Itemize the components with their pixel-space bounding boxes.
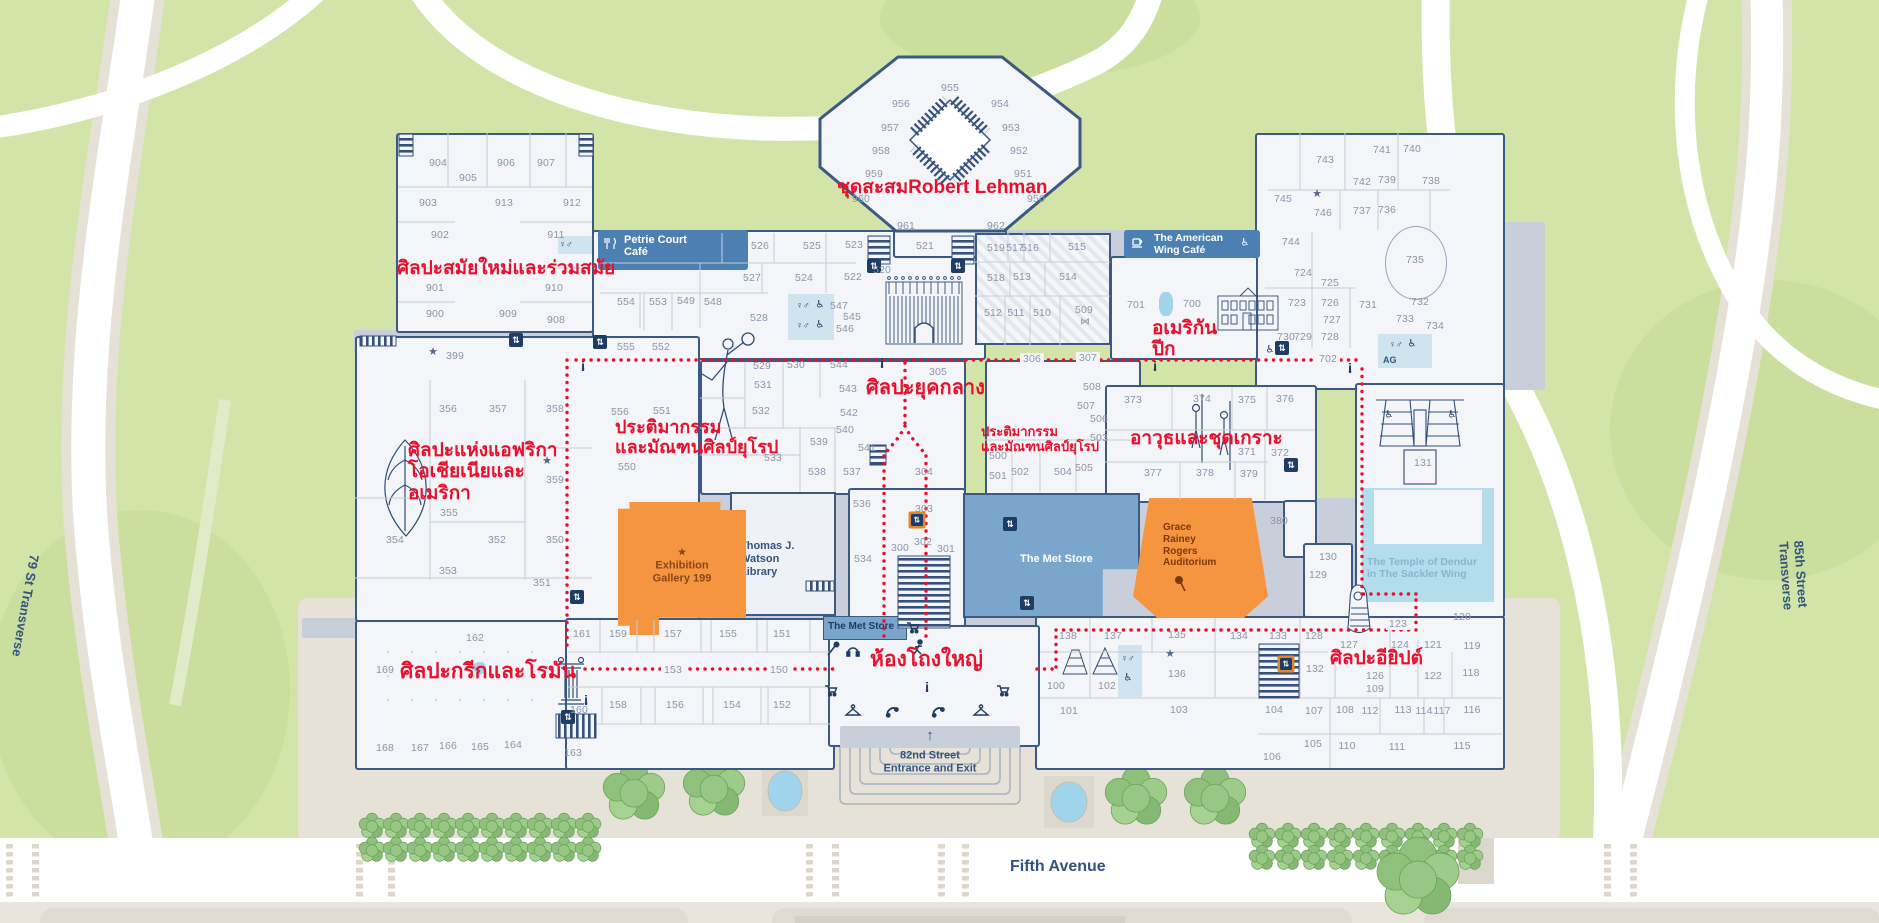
thai-annotation-7: ศิลปะแห่งแอฟริกาโอเชียเนียและอเมริกา — [408, 440, 558, 504]
room-label-524: 524 — [795, 272, 813, 284]
choir-screen-art — [886, 277, 962, 344]
room-label-129: 129 — [1309, 569, 1327, 581]
street-label-fifth-avenue: Fifth Avenue — [1010, 858, 1106, 877]
room-label-133: 133 — [1269, 630, 1287, 642]
room-label-519: 519 — [987, 242, 1005, 254]
coat-check-icon — [974, 705, 988, 715]
room-label-740: 740 — [1403, 143, 1421, 155]
shop-cart-icon — [997, 686, 1009, 696]
room-label-134: 134 — [1230, 630, 1248, 642]
room-label-702: 702 — [1316, 353, 1340, 365]
room-label-553: 553 — [649, 296, 667, 308]
thai-annotation-9: ห้องโถงใหญ่ — [870, 648, 983, 672]
visitor-route-dotted — [567, 360, 1416, 669]
room-label-736: 736 — [1378, 204, 1396, 216]
room-label-159: 159 — [609, 628, 627, 640]
room-label-131: 131 — [1414, 457, 1432, 469]
room-label-724: 724 — [1294, 267, 1312, 279]
room-label-154: 154 — [723, 699, 741, 711]
room-label-541: 541 — [858, 442, 876, 454]
room-label-526: 526 — [751, 240, 769, 252]
room-label-534: 534 — [854, 553, 872, 565]
room-label-540: 540 — [836, 424, 854, 436]
annotation-line: อเมริกา — [408, 483, 558, 504]
svg-text:♀♂: ♀♂ — [796, 300, 810, 310]
room-label-962: 962 — [987, 220, 1005, 232]
room-label-353: 353 — [439, 565, 457, 577]
map-art-layer: ⇅⇅⇅⇅⇅⇅⇅⇅⇅⇅⇅⇅♀♂♀♂♿♀♂♿♀♂♿♀♂♿iiiiii★★★★♿♿⋈♿… — [0, 0, 1879, 923]
room-label-901: 901 — [426, 282, 444, 294]
room-label-355: 355 — [440, 507, 458, 519]
thai-annotation-0: ศิลปะสมัยใหม่และร่วมสมัย — [397, 258, 615, 279]
thai-annotation-4: ศิลปะยุคกลาง — [866, 377, 985, 400]
entrance-label-line1: 82nd Street — [900, 750, 960, 763]
room-label-527: 527 — [743, 272, 761, 284]
room-label-727: 727 — [1323, 314, 1341, 326]
room-label-511: 511 — [1007, 307, 1024, 319]
annotation-line: ประติมากรรม — [615, 417, 778, 437]
svg-text:⇅: ⇅ — [914, 516, 921, 525]
room-label-306: 306 — [1020, 353, 1044, 365]
svg-text:♿: ♿ — [1408, 339, 1417, 350]
room-label-731: 731 — [1359, 299, 1377, 311]
room-label-508: 508 — [1083, 381, 1101, 393]
room-label-739: 739 — [1378, 174, 1396, 186]
room-label-162: 162 — [466, 632, 484, 644]
svg-text:♿: ♿ — [1448, 410, 1457, 421]
room-label-549: 549 — [677, 295, 695, 307]
room-label-150: 150 — [767, 664, 791, 676]
room-label-161: 161 — [573, 628, 591, 640]
room-label-905: 905 — [459, 172, 477, 184]
thai-annotation-10: ศิลปะอียิปต์ — [1330, 648, 1423, 669]
thai-annotation-8: ศิลปะกรีกและโรมัน — [400, 660, 576, 684]
room-label-542: 542 — [840, 407, 858, 419]
annotation-line: ปีก — [1152, 339, 1217, 360]
room-label-137: 137 — [1104, 630, 1122, 642]
room-label-509: 509 — [1075, 304, 1093, 316]
svg-text:♀♂: ♀♂ — [796, 320, 810, 330]
info-icon: i — [1348, 360, 1352, 376]
tables-icon: ⋈ — [1080, 317, 1090, 328]
room-label-166: 166 — [439, 740, 457, 752]
room-label-158: 158 — [609, 699, 627, 711]
room-label-358: 358 — [546, 403, 564, 415]
svg-text:♿: ♿ — [1124, 673, 1133, 684]
svg-text:⇅: ⇅ — [1287, 460, 1295, 470]
room-label-550: 550 — [618, 461, 636, 473]
svg-text:⇅: ⇅ — [596, 337, 604, 347]
room-label-135: 135 — [1168, 629, 1186, 641]
room-label-743: 743 — [1316, 154, 1334, 166]
svg-text:i: i — [925, 679, 929, 695]
info-icon: i — [880, 355, 884, 371]
wheelchair-icon: ♿ — [816, 300, 825, 311]
room-label-501: 501 — [989, 470, 1007, 482]
room-label-300: 300 — [891, 542, 909, 554]
room-label-165: 165 — [471, 741, 489, 753]
room-label-903: 903 — [419, 197, 437, 209]
room-label-152: 152 — [773, 699, 791, 711]
annotation-line: ห้องโถงใหญ่ — [870, 648, 983, 672]
room-label-132: 132 — [1306, 663, 1324, 675]
room-label-108: 108 — [1336, 704, 1354, 716]
svg-text:i: i — [1348, 360, 1352, 376]
room-label-502: 502 — [1011, 466, 1029, 478]
room-label-106: 106 — [1263, 751, 1281, 763]
staircase[interactable] — [898, 556, 950, 628]
svg-text:★: ★ — [1312, 188, 1322, 200]
elevator-icon[interactable]: ⇅ — [1275, 341, 1289, 355]
room-label-957: 957 — [881, 122, 899, 134]
cafe-cup-icon — [1132, 239, 1142, 247]
room-label-904: 904 — [429, 157, 447, 169]
room-label-119: 119 — [1463, 640, 1480, 652]
room-label-521: 521 — [916, 240, 934, 252]
room-label-113: 113 — [1394, 704, 1411, 716]
room-label-741: 741 — [1373, 144, 1391, 156]
room-label-151: 151 — [773, 628, 791, 640]
room-label-911: 911 — [547, 229, 564, 241]
staircase[interactable] — [360, 336, 396, 346]
svg-text:★: ★ — [428, 346, 438, 358]
elevator-icon[interactable]: ⇅ — [1284, 458, 1298, 472]
room-label-138: 138 — [1059, 630, 1077, 642]
room-label-136: 136 — [1168, 668, 1186, 680]
room-label-738: 738 — [1422, 175, 1440, 187]
room-label-378: 378 — [1196, 467, 1214, 479]
thai-annotation-5: ประติมากรรมและมัณฑนศิลป์ยุโรป — [981, 425, 1099, 454]
room-label-156: 156 — [666, 699, 684, 711]
sarcophagus-art — [1348, 585, 1370, 633]
room-label-122: 122 — [1424, 670, 1442, 682]
annotation-line: อเมริกัน — [1152, 318, 1217, 339]
room-label-522: 522 — [844, 271, 862, 283]
room-label-728: 728 — [1321, 331, 1339, 343]
elevator-icon[interactable]: ⇅ — [951, 259, 965, 273]
annotation-line: และมัณฑนศิลป์ยุโรป — [615, 437, 778, 457]
room-label-107: 107 — [1305, 705, 1323, 717]
room-label-169: 169 — [376, 664, 394, 676]
annotation-line: ศิลปะกรีกและโรมัน — [400, 660, 576, 684]
elevator-icon[interactable]: ⇅ — [570, 590, 584, 604]
room-label-377: 377 — [1144, 467, 1162, 479]
room-label-505: 505 — [1075, 462, 1093, 474]
svg-text:♿: ♿ — [816, 320, 825, 331]
room-label-101: 101 — [1060, 705, 1078, 717]
svg-text:⇅: ⇅ — [512, 335, 520, 345]
room-label-745: 745 — [1274, 193, 1292, 205]
svg-text:⇅: ⇅ — [573, 592, 581, 602]
room-label-167: 167 — [411, 742, 429, 754]
room-label-548: 548 — [704, 296, 722, 308]
room-label-374: 374 — [1193, 393, 1211, 405]
room-label-726: 726 — [1321, 297, 1339, 309]
wheelchair-icon: ♿ — [1124, 673, 1133, 684]
room-label-734: 734 — [1426, 320, 1444, 332]
room-label-544: 544 — [830, 359, 848, 371]
headphones-icon — [847, 648, 859, 656]
restaurant-icon — [605, 238, 616, 249]
elevator-icon[interactable]: ⇅ — [1003, 517, 1017, 531]
room-label-543: 543 — [839, 383, 857, 395]
thai-annotation-6: อาวุธและชุดเกราะ — [1130, 428, 1283, 449]
svg-text:⇅: ⇅ — [1023, 598, 1031, 608]
info-icon: i — [581, 358, 585, 374]
room-label-555: 555 — [617, 341, 635, 353]
annotation-line: ประติมากรรม — [981, 425, 1099, 440]
street-label-85-transverse: 85th Street Transverse — [1775, 540, 1811, 615]
room-label-504: 504 — [1054, 466, 1072, 478]
annotation-line: ศิลปะยุคกลาง — [866, 377, 985, 400]
wheelchair-icon: ♿ — [816, 320, 825, 331]
room-label-130: 130 — [1319, 551, 1337, 563]
room-label-737: 737 — [1353, 205, 1371, 217]
room-label-376: 376 — [1276, 393, 1294, 405]
room-label-399: 399 — [446, 350, 464, 362]
telephone-icon — [885, 706, 899, 718]
room-label-357: 357 — [489, 403, 507, 415]
room-label-516: 516 — [1021, 242, 1039, 254]
room-label-112: 112 — [1361, 705, 1378, 717]
room-label-128: 128 — [1305, 630, 1323, 642]
room-label-512: 512 — [984, 307, 1002, 319]
room-label-907: 907 — [537, 157, 555, 169]
room-label-375: 375 — [1238, 394, 1256, 406]
restroom-icon: ♀♂ — [1121, 653, 1135, 663]
room-label-539: 539 — [810, 436, 828, 448]
room-label-725: 725 — [1321, 277, 1339, 289]
room-label-912: 912 — [563, 197, 581, 209]
room-label-531: 531 — [754, 379, 772, 391]
room-label-955: 955 — [941, 82, 959, 94]
thai-annotation-3: ประติมากรรมและมัณฑนศิลป์ยุโรป — [615, 417, 778, 458]
room-label-953: 953 — [1002, 122, 1020, 134]
room-label-537: 537 — [843, 466, 861, 478]
svg-text:⇅: ⇅ — [1006, 519, 1014, 529]
room-label-351: 351 — [533, 577, 551, 589]
room-label-554: 554 — [617, 296, 635, 308]
room-label-110: 110 — [1338, 740, 1355, 752]
room-label-730: 730 — [1277, 331, 1295, 343]
room-label-525: 525 — [803, 240, 821, 252]
room-label-952: 952 — [1010, 145, 1028, 157]
room-label-120: 120 — [1453, 611, 1471, 623]
room-label-538: 538 — [808, 466, 826, 478]
room-label-956: 956 — [892, 98, 910, 110]
room-label-552: 552 — [652, 341, 670, 353]
wheelchair-icon: ♿ — [1385, 410, 1394, 421]
audio-guide-icon — [828, 642, 839, 655]
room-label-157: 157 — [664, 628, 682, 640]
svg-text:⇅: ⇅ — [1283, 660, 1290, 669]
svg-text:★: ★ — [1165, 648, 1175, 660]
room-label-742: 742 — [1353, 176, 1371, 188]
room-label-103: 103 — [1170, 704, 1188, 716]
room-label-302: 302 — [914, 536, 932, 548]
room-label-528: 528 — [750, 312, 768, 324]
svg-text:♀♂: ♀♂ — [1121, 653, 1135, 663]
room-label-536: 536 — [853, 498, 871, 510]
room-label-123: 123 — [1386, 618, 1410, 630]
elevator-icon[interactable]: ⇅ — [593, 335, 607, 349]
room-label-532: 532 — [752, 405, 770, 417]
room-label-109: 109 — [1366, 683, 1384, 695]
wheelchair-icon: ♿ — [1408, 339, 1417, 350]
room-label-514: 514 — [1059, 271, 1077, 283]
room-label-961: 961 — [897, 220, 915, 232]
wheelchair-icon: ♿ — [1266, 345, 1275, 356]
svg-text:♿: ♿ — [1385, 410, 1394, 421]
room-label-163: 163 — [564, 747, 582, 759]
room-label-507: 507 — [1077, 400, 1095, 412]
svg-text:⋈: ⋈ — [1080, 317, 1090, 328]
annotation-line: ชุดสะสมRobert Lehman — [837, 177, 1048, 198]
room-label-530: 530 — [787, 359, 805, 371]
room-label-701: 701 — [1127, 299, 1145, 311]
room-label-910: 910 — [545, 282, 563, 294]
room-label-506: 506 — [1090, 413, 1108, 425]
room-label-546: 546 — [836, 323, 854, 335]
svg-text:i: i — [581, 358, 585, 374]
room-label-954: 954 — [991, 98, 1009, 110]
room-label-913: 913 — [495, 197, 513, 209]
room-label-155: 155 — [719, 628, 737, 640]
room-label-723: 723 — [1288, 297, 1306, 309]
room-label-303: 303 — [915, 503, 933, 515]
room-label-115: 115 — [1453, 740, 1470, 752]
room-label-352: 352 — [488, 534, 506, 546]
room-label-732: 732 — [1411, 296, 1429, 308]
room-label-510: 510 — [1033, 307, 1051, 319]
room-label-380: 380 — [1270, 515, 1288, 527]
room-label-104: 104 — [1265, 704, 1283, 716]
room-label-906: 906 — [497, 157, 515, 169]
microphone-icon — [1176, 577, 1185, 591]
facade-art — [1218, 288, 1278, 330]
staircase[interactable] — [399, 134, 413, 156]
room-label-116: 116 — [1463, 704, 1480, 716]
room-label-735: 735 — [1406, 254, 1424, 266]
svg-text:♿: ♿ — [816, 300, 825, 311]
star-icon: ★ — [1312, 188, 1322, 200]
room-label-513: 513 — [1013, 271, 1031, 283]
entrance-label-line2: Entrance and Exit — [884, 763, 977, 776]
room-label-518: 518 — [987, 272, 1005, 284]
room-label-958: 958 — [872, 145, 890, 157]
room-label-900: 900 — [426, 308, 444, 320]
room-label-356: 356 — [439, 403, 457, 415]
svg-text:♿: ♿ — [1241, 238, 1250, 249]
restroom-icon: ♀♂ — [1389, 339, 1403, 349]
room-label-168: 168 — [376, 742, 394, 754]
room-label-700: 700 — [1183, 298, 1201, 310]
room-label-301: 301 — [937, 543, 955, 555]
staircase[interactable] — [806, 581, 834, 591]
room-label-105: 105 — [1304, 738, 1322, 750]
wheelchair-icon: ♿ — [1448, 410, 1457, 421]
elevator-icon[interactable]: ⇅ — [509, 333, 523, 347]
svg-text:♿: ♿ — [1266, 345, 1275, 356]
room-label-551: 551 — [653, 405, 671, 417]
room-label-909: 909 — [499, 308, 517, 320]
restroom-icon: ♀♂ — [796, 300, 810, 310]
thai-annotation-2: อเมริกันปีก — [1152, 318, 1217, 361]
thai-annotation-1: ชุดสะสมRobert Lehman — [837, 177, 1048, 198]
room-label-117: 117 — [1433, 705, 1450, 717]
room-label-111: 111 — [1389, 741, 1406, 753]
restroom-icon: ♀♂ — [796, 320, 810, 330]
room-label-733: 733 — [1396, 313, 1414, 325]
room-label-164: 164 — [504, 739, 522, 751]
annotation-line: ศิลปะสมัยใหม่และร่วมสมัย — [397, 258, 615, 279]
room-label-529: 529 — [753, 360, 771, 372]
arrow-up-icon: ↑ — [926, 727, 934, 745]
svg-text:⇅: ⇅ — [1278, 343, 1286, 353]
annotation-line: โอเชียเนียและ — [408, 461, 558, 482]
room-label-350: 350 — [546, 534, 564, 546]
room-label-729: 729 — [1294, 331, 1312, 343]
room-label-102: 102 — [1098, 680, 1116, 692]
room-label-153: 153 — [661, 664, 685, 676]
room-label-515: 515 — [1068, 241, 1086, 253]
star-icon: ★ — [1165, 648, 1175, 660]
star-icon: ★ — [428, 346, 438, 358]
info-icon: i — [925, 679, 929, 695]
room-label-902: 902 — [431, 229, 449, 241]
room-label-545: 545 — [843, 311, 861, 323]
room-label-126: 126 — [1366, 670, 1384, 682]
wheelchair-icon: ♿ — [1241, 238, 1250, 249]
room-label-746: 746 — [1314, 207, 1332, 219]
room-label-114: 114 — [1415, 705, 1432, 717]
room-label-118: 118 — [1462, 667, 1479, 679]
room-label-520: 520 — [873, 264, 891, 276]
room-label-354: 354 — [386, 534, 404, 546]
room-label-304: 304 — [915, 466, 933, 478]
room-label-523: 523 — [845, 239, 863, 251]
room-label-373: 373 — [1124, 394, 1142, 406]
annotation-line: ศิลปะอียิปต์ — [1330, 648, 1423, 669]
svg-text:♀♂: ♀♂ — [1389, 339, 1403, 349]
room-label-379: 379 — [1240, 468, 1258, 480]
room-label-160: 160 — [570, 704, 588, 716]
elevator-icon[interactable]: ⇅ — [1020, 596, 1034, 610]
coat-check-icon — [846, 705, 860, 715]
room-label-908: 908 — [547, 314, 565, 326]
elevator-icon[interactable]: ⇅ — [1278, 656, 1295, 673]
telephone-icon — [931, 706, 945, 718]
annotation-line: อาวุธและชุดเกราะ — [1130, 428, 1283, 449]
staircase[interactable] — [579, 134, 593, 156]
svg-text:i: i — [880, 355, 884, 371]
annotation-line: และมัณฑนศิลป์ยุโรป — [981, 440, 1099, 455]
room-label-100: 100 — [1047, 680, 1065, 692]
met-museum-floor-map: Petrie Court Café The American Wing Café… — [0, 0, 1879, 923]
annotation-line: ศิลปะแห่งแอฟริกา — [408, 440, 558, 461]
room-label-121: 121 — [1424, 639, 1442, 651]
room-label-307: 307 — [1076, 352, 1100, 364]
room-label-744: 744 — [1282, 236, 1300, 248]
svg-text:⇅: ⇅ — [954, 261, 962, 271]
